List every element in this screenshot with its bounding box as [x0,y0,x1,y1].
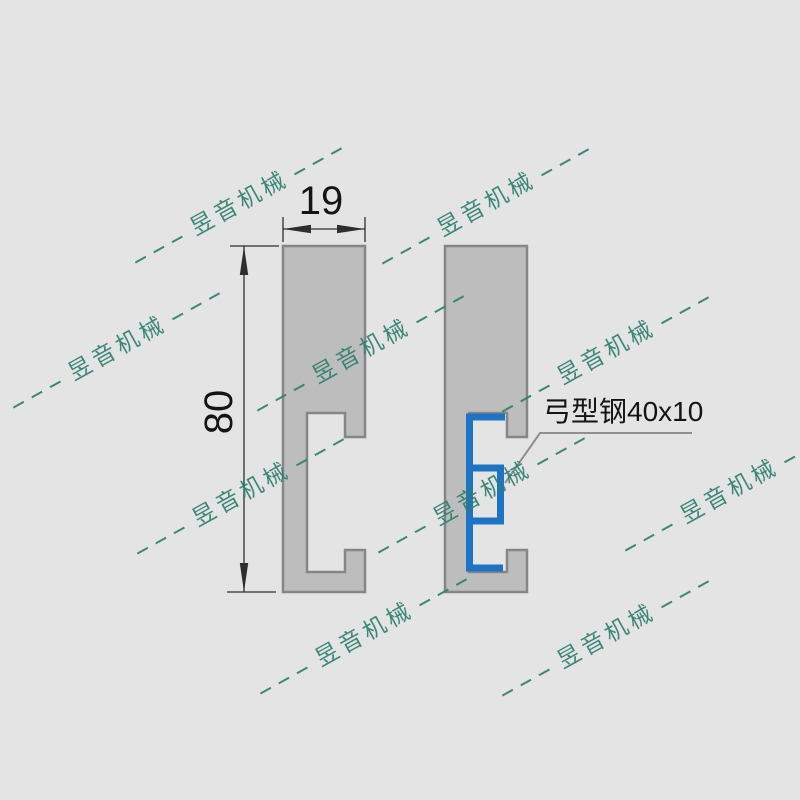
left-profile-section [283,246,365,592]
drawing-canvas: 19 80 弓型钢40x10 昱音机械昱音机械昱音机械昱音机械昱音机械昱音机械昱… [0,0,800,800]
height-dimension-label: 80 [199,390,239,435]
left-arrow-icon [283,225,311,233]
up-arrow-icon [240,246,248,275]
bow-steel-profile [470,417,506,568]
right-arrow-icon [337,225,365,233]
callout-label: 弓型钢40x10 [543,396,703,428]
width-dimension-label: 19 [299,181,344,221]
callout-leader-line [505,433,692,483]
down-arrow-icon [240,563,248,592]
